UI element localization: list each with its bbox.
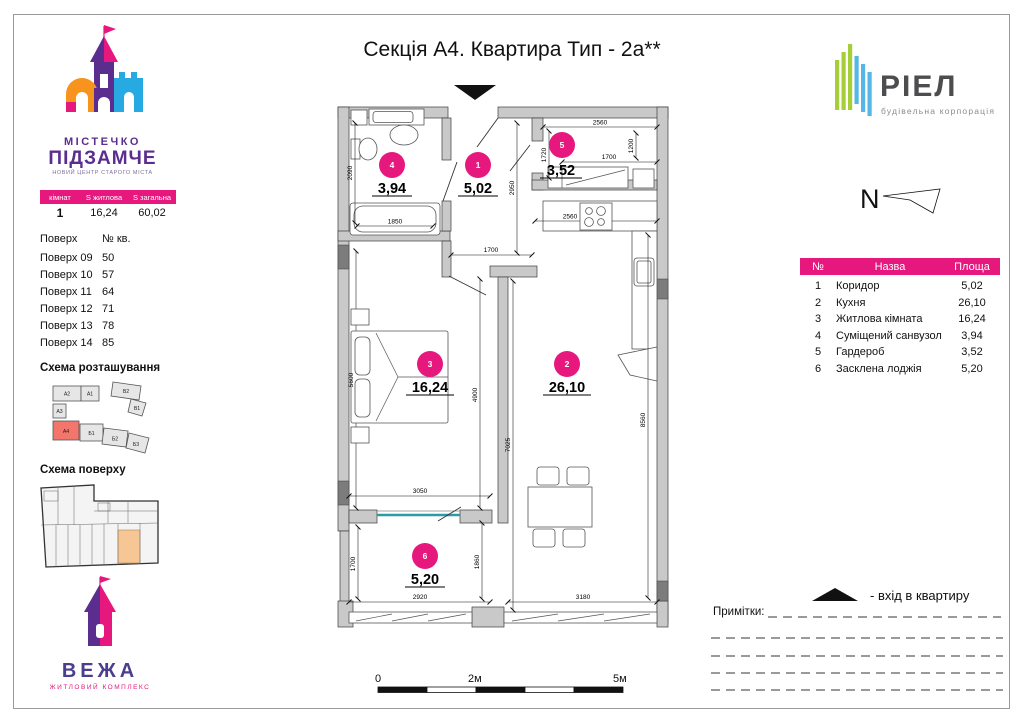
floors-list: Поверх № кв. Поверх 09 50 Поверх 10 57 П… [40,230,180,351]
town-logo-castle [52,22,152,134]
svg-text:Б1: Б1 [88,431,94,437]
site-schema: А2 А1 В2 В1 А3 А4 Б1 Б2 Б3 [45,380,190,458]
rooms-row: 6Засклена лоджія5,20 [800,361,1000,378]
washing-machine-icon [351,110,367,125]
riel-logo-name: РІЕЛ [880,70,957,104]
rooms-col-num: № [800,261,836,273]
svg-text:Б3: Б3 [133,442,139,448]
summary-rooms-value: 1 [40,206,80,220]
rooms-row: 2Кухня26,10 [800,295,1000,312]
floor-label: Поверх 10 [40,269,102,281]
sheet-title: Секція А4. Квартира Тип - 2а** [300,38,724,62]
summary-total-value: 60,02 [128,207,176,219]
svg-text:16,24: 16,24 [412,380,448,396]
svg-text:2560: 2560 [593,120,608,127]
entrance-legend-text: - вхід в квартиру [870,588,969,603]
floor-label: Поверх 13 [40,320,102,332]
notes-label: Примітки: [713,606,764,618]
entrance-legend-icon [805,583,865,605]
svg-text:2560: 2560 [563,214,578,221]
svg-text:1700: 1700 [350,556,357,571]
floor-row: Поверх 09 50 [40,249,180,266]
svg-text:1860: 1860 [474,554,481,569]
site-schema-title: Схема розташування [40,362,190,374]
floor-label: Поверх 14 [40,337,102,349]
north-arrow: N [850,175,950,220]
svg-text:3,94: 3,94 [378,181,406,197]
floors-header-floor: Поверх [40,233,102,245]
svg-text:В1: В1 [134,406,140,412]
svg-text:2: 2 [565,359,570,369]
rooms-row: 1Коридор5,02 [800,278,1000,295]
rooms-row: 5Гардероб3,52 [800,344,1000,361]
svg-text:3: 3 [428,359,433,369]
rooms-row: 3Житлова кімната16,24 [800,311,1000,328]
apt-number: 85 [102,337,180,349]
apt-number: 78 [102,320,180,332]
svg-text:А4: А4 [63,429,69,435]
svg-text:А1: А1 [87,392,93,398]
town-logo-line2: ПІДЗАМЧЕ [30,148,175,170]
svg-text:5,20: 5,20 [411,572,439,588]
svg-text:1720: 1720 [541,147,548,162]
svg-text:4: 4 [390,160,395,170]
dining-set-icon [528,467,592,547]
svg-text:5,02: 5,02 [464,181,492,197]
floor-schema-title: Схема поверху [40,464,190,476]
castle-flag-icon [104,25,116,34]
rooms-table: № Назва Площа 1Коридор5,02 2Кухня26,10 3… [800,258,1000,377]
svg-text:26,10: 26,10 [549,380,585,396]
town-logo-tagline: НОВИЙ ЦЕНТР СТАРОГО МІСТА [30,170,175,176]
svg-text:5600: 5600 [348,372,355,387]
floor-row: Поверх 13 78 [40,317,180,334]
doors [438,118,530,521]
riel-logo-stripes [833,42,877,118]
floor-row: Поверх 10 57 [40,266,180,283]
svg-text:5: 5 [560,140,565,150]
svg-text:2920: 2920 [413,594,428,601]
floor-row: Поверх 12 71 [40,300,180,317]
apt-number: 50 [102,252,180,264]
svg-text:1700: 1700 [602,154,617,161]
tower-logo [72,576,128,658]
corner-shelf-icon [618,347,657,381]
stove-icon [580,203,612,230]
notes-line [711,637,1003,639]
notes-line [711,672,1003,674]
svg-text:2090: 2090 [347,165,354,180]
svg-text:А2: А2 [64,392,70,398]
tower-logo-tagline: ЖИТЛОВИЙ КОМПЛЕКС [30,684,170,691]
svg-text:3050: 3050 [413,488,428,495]
apt-number: 64 [102,286,180,298]
floor-schema [38,483,163,571]
rooms-row: 4Суміщений санвузол3,94 [800,328,1000,345]
scale-bar: 0 2м 5м [370,668,690,708]
svg-text:4900: 4900 [472,387,479,402]
summary-living-value: 16,24 [80,207,128,219]
apt-number: 57 [102,269,180,281]
svg-text:8560: 8560 [640,412,647,427]
svg-text:1: 1 [476,160,481,170]
summary-col-rooms: кімнат [40,193,80,202]
kitchen-fixtures [543,167,657,381]
summary-table: кімнат S житлова S загальна 1 16,24 60,0… [40,190,176,222]
floor-label: Поверх 09 [40,252,102,264]
svg-text:3,52: 3,52 [547,163,575,179]
floorplan-sheet: МІСТЕЧКО ПІДЗАМЧЕ НОВИЙ ЦЕНТР СТАРОГО МІ… [0,0,1024,728]
floor-plan: 1850 1700 2560 1700 2560 3050 2920 3180 … [330,83,695,708]
svg-text:Б2: Б2 [112,437,118,443]
svg-text:А3: А3 [56,409,62,415]
floor-row: Поверх 11 64 [40,283,180,300]
tower-flag-icon [100,576,111,583]
svg-text:2950: 2950 [509,180,516,195]
scale-5m-label: 5м [613,673,627,685]
svg-text:В2: В2 [123,389,129,395]
north-label: N [860,184,880,214]
svg-text:6: 6 [423,551,428,561]
svg-text:7025: 7025 [505,437,512,452]
svg-text:1700: 1700 [484,247,499,254]
floors-header-apt: № кв. [102,233,180,245]
summary-col-living: S житлова [80,193,128,202]
rooms-col-area: Площа [944,261,1000,273]
svg-text:1200: 1200 [628,138,635,153]
svg-text:1850: 1850 [388,219,403,226]
rooms-col-name: Назва [836,261,944,273]
notes-line [768,616,1001,618]
floor-label: Поверх 12 [40,303,102,315]
floor-highlight-apartment [118,530,140,563]
sink-icon [390,125,418,145]
floor-label: Поверх 11 [40,286,102,298]
svg-text:3180: 3180 [576,594,591,601]
tower-logo-name: ВЕЖА [30,660,170,683]
town-logo-line1: МІСТЕЧКО [30,136,175,148]
entrance-arrow-icon [454,85,496,100]
apt-number: 71 [102,303,180,315]
notes-line [711,655,1003,657]
summary-col-total: S загальна [128,193,176,202]
notes-line [711,689,1003,691]
scale-2m-label: 2м [468,673,482,685]
floor-row: Поверх 14 85 [40,334,180,351]
riel-logo-tagline: будівельна корпорація [881,106,995,116]
scale-0-label: 0 [375,673,381,685]
